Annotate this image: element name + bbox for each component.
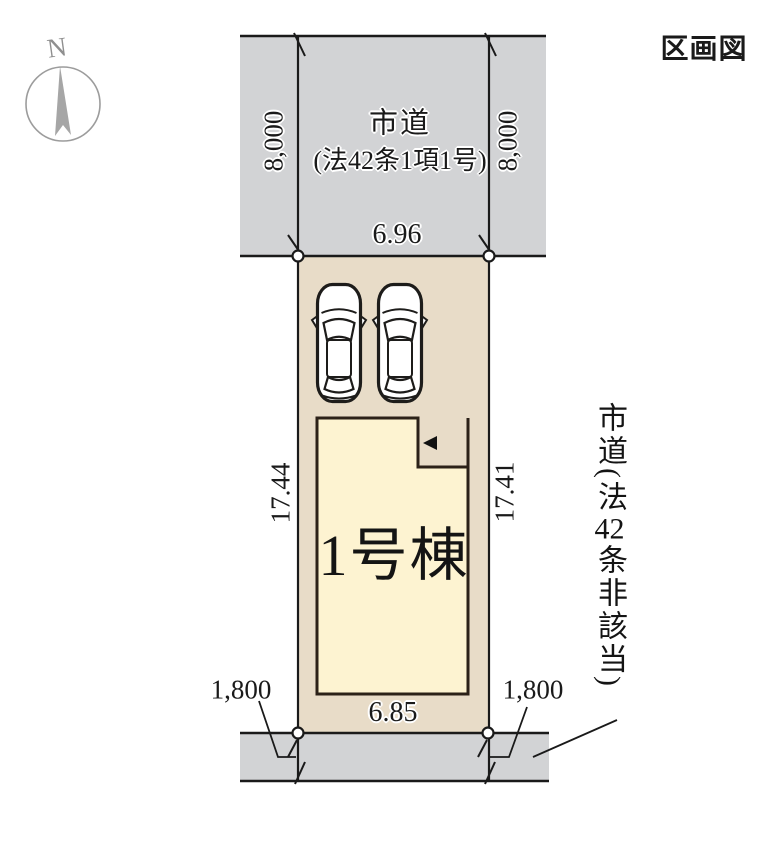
right-road-label-part1: 市道(法 [593, 402, 626, 514]
top-road-name-line2: (法42条1項1号) [313, 148, 486, 174]
dim-top-road-depth-left: 8,000 [261, 111, 288, 172]
dim-offset-right: 1,800 [503, 677, 564, 704]
building-label: 1号棟 [318, 527, 469, 585]
right-road-label: 市道(法42条非該当) [594, 402, 624, 689]
dim-plot-side-left: 17.44 [268, 463, 295, 524]
compass-north-label: N [45, 33, 68, 62]
plot-plan: 区画図 N 市道 (法42条1項1号) 8,000 8,000 6.96 17.… [0, 0, 779, 848]
dim-plot-side-right: 17.41 [492, 462, 519, 523]
compass-icon [26, 66, 100, 141]
dim-frontage-bottom: 6.85 [369, 699, 418, 727]
car-icon [312, 285, 366, 402]
car-icon [373, 285, 427, 402]
dim-offset-left: 1,800 [211, 677, 272, 704]
dim-frontage-top: 6.96 [373, 221, 422, 249]
right-road-label-part2: 条非該当) [593, 544, 626, 689]
right-road-label-number: 42 [593, 514, 626, 544]
top-road-name-line1: 市道 [369, 110, 431, 139]
page-title: 区画図 [660, 35, 747, 63]
dim-top-road-depth-right: 8,000 [495, 111, 522, 172]
